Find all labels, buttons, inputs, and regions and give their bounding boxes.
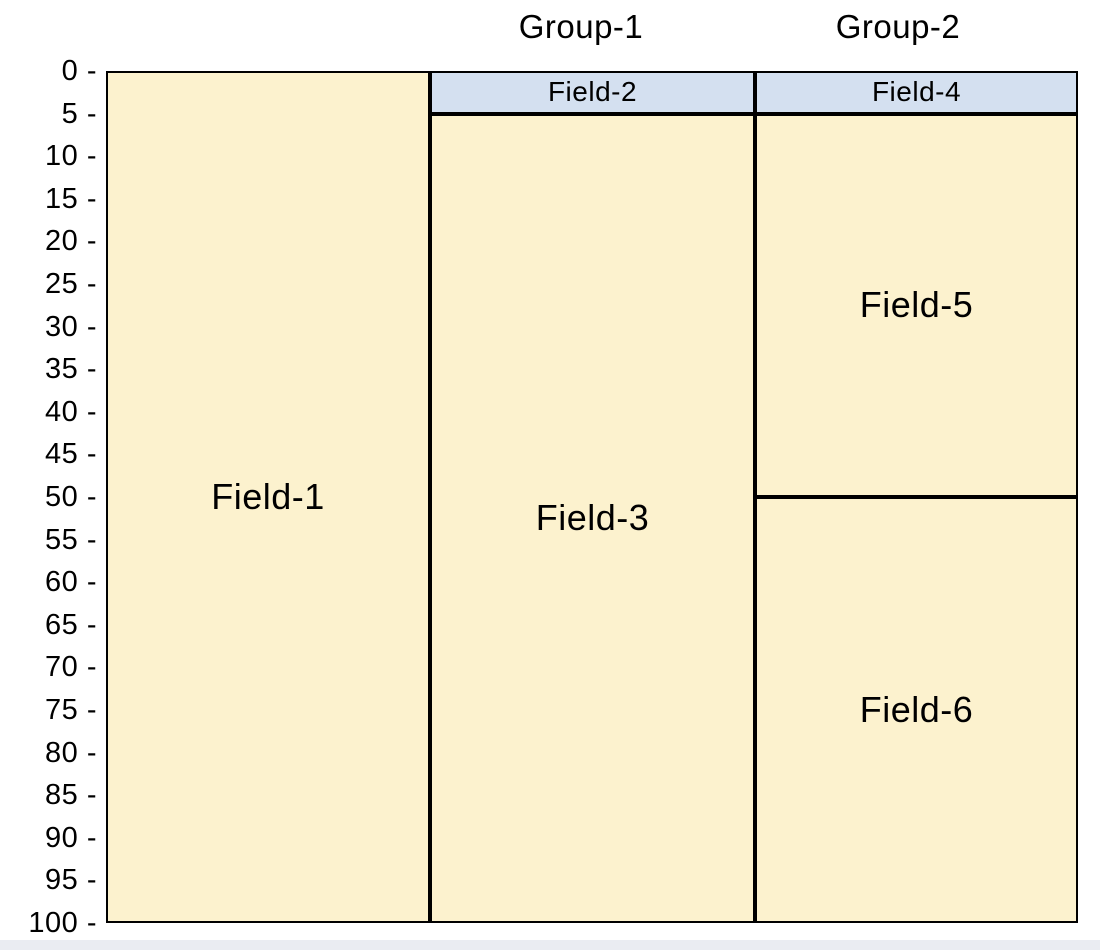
plot-area: Field-1Field-2Field-3Field-4Field-5Field… (106, 71, 1078, 923)
y-axis-tick-label: 30 - (0, 310, 97, 344)
y-axis-tick-label: 35 - (0, 352, 97, 386)
y-axis-tick-label: 85 - (0, 778, 97, 812)
field-rect-field-1: Field-1 (106, 71, 430, 923)
field-label-field-4: Field-4 (872, 76, 961, 108)
y-axis-tick-label: 40 - (0, 395, 97, 429)
y-axis-tick-label: 55 - (0, 523, 97, 557)
field-rect-field-5: Field-5 (755, 114, 1078, 497)
y-axis-tick-label: 15 - (0, 182, 97, 216)
group-title-1: Group-1 (519, 8, 644, 46)
group-title-2: Group-2 (836, 8, 961, 46)
field-label-field-6: Field-6 (860, 689, 974, 731)
field-rect-field-4: Field-4 (755, 71, 1078, 114)
y-axis-tick-label: 90 - (0, 821, 97, 855)
y-axis-tick-label: 80 - (0, 736, 97, 770)
field-label-field-1: Field-1 (211, 476, 325, 518)
y-axis-tick-label: 75 - (0, 693, 97, 727)
field-rect-field-3: Field-3 (430, 114, 755, 923)
y-axis-tick-label: 10 - (0, 139, 97, 173)
y-axis-tick-label: 95 - (0, 863, 97, 897)
y-axis-tick-label: 25 - (0, 267, 97, 301)
y-axis-tick-label: 0 - (0, 54, 97, 88)
y-axis-tick-label: 50 - (0, 480, 97, 514)
field-label-field-5: Field-5 (860, 284, 974, 326)
y-axis-tick-label: 5 - (0, 97, 97, 131)
field-rect-field-6: Field-6 (755, 497, 1078, 923)
field-rect-field-2: Field-2 (430, 71, 755, 114)
field-label-field-3: Field-3 (536, 497, 650, 539)
y-axis-tick-label: 100 - (0, 906, 97, 940)
chart-canvas: Group-1Group-2 0 -5 -10 -15 -20 -25 -30 … (0, 0, 1100, 950)
footer-strip (0, 940, 1100, 950)
y-axis-tick-label: 65 - (0, 608, 97, 642)
y-axis-tick-label: 60 - (0, 565, 97, 599)
field-label-field-2: Field-2 (548, 76, 637, 108)
y-axis-tick-label: 70 - (0, 650, 97, 684)
y-axis-tick-label: 45 - (0, 437, 97, 471)
y-axis-tick-label: 20 - (0, 224, 97, 258)
